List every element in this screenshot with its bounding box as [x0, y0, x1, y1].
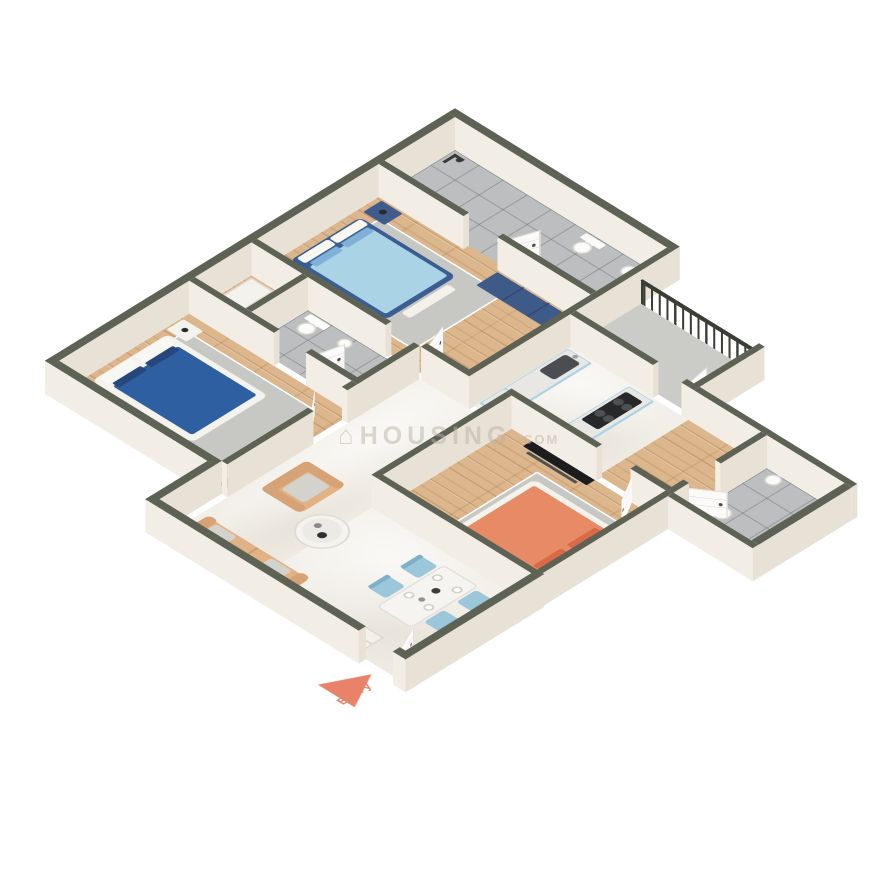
watermark-suffix: .COM — [517, 432, 559, 447]
wall-kitchen-north-a-east-face — [653, 362, 659, 399]
wall-bath3-south-east-face — [753, 545, 759, 582]
wall-north-east-face — [673, 247, 680, 284]
wall-bed1-north-a-east-face — [274, 329, 280, 366]
wall-bed3-north-a-east-face — [596, 444, 602, 481]
wall-living-east-south-face — [398, 655, 405, 692]
wall-bath3-north-east-face — [852, 484, 858, 521]
watermark-text: HOUSING — [360, 422, 512, 451]
wall-kitchen-north-b-south-face — [681, 382, 688, 419]
wall-living-south-a-east-face — [359, 626, 366, 663]
wall-bed1-north-b-east-face — [357, 381, 363, 418]
wall-bed1-east-a-east-face — [348, 384, 358, 423]
wall-bath2-south-a-east-face — [463, 213, 469, 250]
wall-bed2-south-a-east-face — [386, 322, 392, 359]
wall-bed2-south-b-east-face — [469, 373, 475, 410]
floorplan-3d-render: Entry ⌂ HOUSING .COM — [0, 0, 870, 870]
house-icon: ⌂ — [338, 420, 354, 451]
housing-watermark: ⌂ HOUSING .COM — [338, 420, 559, 451]
